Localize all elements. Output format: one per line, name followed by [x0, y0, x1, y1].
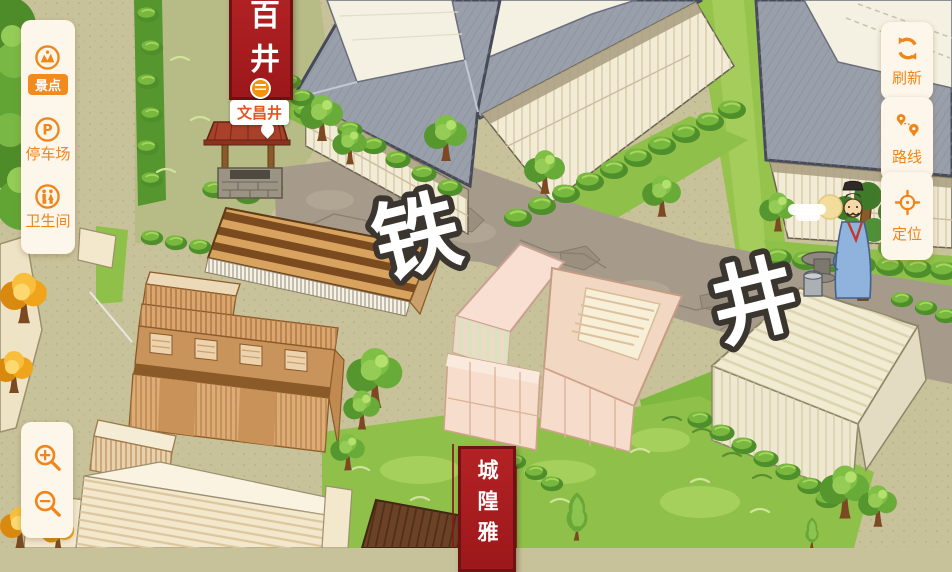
bottom-banner: 城隍雅 — [458, 446, 516, 572]
locate-icon — [894, 189, 921, 216]
sidebar-item-parking[interactable]: P 停车场 — [25, 116, 70, 163]
locate-button[interactable]: 定位 — [881, 172, 933, 260]
refresh-icon — [894, 35, 921, 62]
magnifier-plus-icon — [32, 442, 62, 472]
route-button[interactable]: 路线 — [881, 97, 933, 181]
magnifier-minus-icon — [32, 488, 62, 518]
route-icon — [894, 112, 921, 139]
route-label: 路线 — [892, 149, 922, 166]
locate-label: 定位 — [892, 226, 922, 243]
parking-icon: P — [34, 116, 61, 143]
refresh-label: 刷新 — [892, 70, 922, 87]
restroom-label: 卫生间 — [25, 213, 70, 230]
poi-marker-wenchang-well[interactable]: 文昌井 — [228, 78, 294, 148]
scenic-spots-label: 景点 — [28, 74, 68, 95]
banner-rail-left — [452, 444, 454, 548]
sidebar-item-restroom[interactable]: 卫生间 — [25, 183, 70, 230]
zoom-out-button[interactable] — [30, 486, 64, 520]
poi-label: 文昌井 — [230, 100, 289, 125]
restroom-icon — [34, 183, 61, 210]
svg-text:P: P — [43, 122, 53, 138]
scenic-spots-icon — [34, 44, 61, 71]
parking-label: 停车场 — [25, 146, 70, 163]
zoom-controls — [21, 422, 73, 538]
zoom-in-button[interactable] — [30, 440, 64, 474]
sidebar-item-scenic-spots[interactable]: 景点 — [28, 44, 68, 95]
well-marker-icon — [250, 78, 271, 99]
refresh-button[interactable]: 刷新 — [881, 22, 933, 100]
bottom-banner-text: 城隍雅 — [472, 449, 502, 569]
left-toolbar: 景点 P 停车场 卫生间 — [21, 20, 75, 254]
